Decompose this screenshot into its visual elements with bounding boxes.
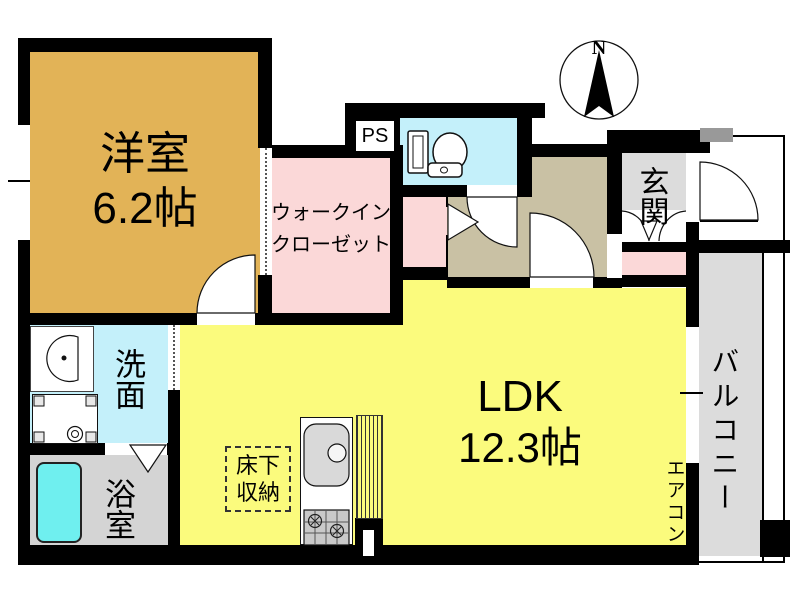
wall-balcony-top xyxy=(697,240,790,253)
pipe-space-box: PS xyxy=(356,121,394,151)
entrance-label: 玄関 xyxy=(634,156,668,236)
western-room-size: 6.2帖 xyxy=(55,184,235,234)
pipe-space-label: PS xyxy=(362,125,389,147)
shoe-cabinet xyxy=(622,252,686,275)
bottom-wall-notch xyxy=(363,530,374,556)
compass-needle-icon xyxy=(584,50,614,117)
washroom-label: 洗面 xyxy=(109,340,145,418)
ldk-floor-nook xyxy=(403,280,447,345)
wall-bottom xyxy=(18,545,699,565)
underfloor-storage-label-line1: 床下 xyxy=(236,452,280,480)
wall-balcony-corner xyxy=(760,520,790,557)
balcony-label: バルコニー xyxy=(707,326,739,538)
wall-entrance-top xyxy=(607,130,710,153)
front-door-gap xyxy=(686,153,699,222)
wall-closet-right-b xyxy=(446,235,448,280)
walk-in-closet-label-line1: ウォークイン xyxy=(262,200,400,226)
compass-north-label: N xyxy=(586,36,612,60)
balcony-rail-bottom-line xyxy=(697,561,785,563)
underfloor-storage-label-line2: 収納 xyxy=(236,479,280,507)
wall-top xyxy=(18,38,272,52)
ldk-balcony-window xyxy=(686,327,699,463)
ldk-window-tick xyxy=(680,392,703,394)
underfloor-storage-box: 床下 収納 xyxy=(225,446,291,512)
closet-floor xyxy=(403,197,447,267)
western-window-tick xyxy=(8,180,30,182)
western-room-label: 洋室 xyxy=(60,128,230,180)
ldk-size: 12.3帖 xyxy=(415,424,625,472)
ldk-floor-upper xyxy=(447,288,687,345)
refrigerator-space xyxy=(356,415,383,519)
wall-closet-right-a xyxy=(446,197,448,207)
wall-left xyxy=(18,38,30,565)
wall-toilet-bottom xyxy=(400,185,467,197)
balcony-rail-inner-line xyxy=(762,253,764,561)
washroom-door-dotted-line xyxy=(173,325,175,390)
western-room-window xyxy=(18,125,30,240)
entrance-hall-opening xyxy=(607,234,622,278)
bathtub xyxy=(36,462,82,543)
meter-box xyxy=(700,128,733,142)
kitchen-counter xyxy=(300,417,353,545)
hallway-floor-upper xyxy=(532,157,607,197)
washstand-counter xyxy=(30,326,94,392)
toilet-door-gap xyxy=(467,185,517,197)
wall-western-right-upper xyxy=(258,38,272,148)
bathroom-label: 浴室 xyxy=(99,470,135,548)
front-door-swing xyxy=(700,162,758,220)
washing-machine-pan xyxy=(32,394,98,444)
wall-western-right-lower xyxy=(258,275,272,315)
porch-top-line xyxy=(733,135,785,137)
ldk-door-gap xyxy=(530,277,593,288)
walk-in-closet-label-line2: クローゼット xyxy=(262,232,400,258)
wall-closet-bottom xyxy=(400,267,447,280)
bathroom-door-gap xyxy=(105,443,167,455)
ldk-label: LDK xyxy=(430,372,610,422)
wall-hall-bottom-left xyxy=(447,277,530,288)
floor-plan-canvas: PS xyxy=(0,0,800,600)
toilet-room-floor xyxy=(400,118,517,185)
wall-shoebox-top xyxy=(622,242,686,252)
western-room-door-gap xyxy=(197,313,255,325)
air-conditioner-label: エアコン xyxy=(662,452,684,552)
hallway-floor xyxy=(447,197,607,288)
front-door-leaf xyxy=(700,220,758,222)
balcony-rail-outer-line xyxy=(783,135,785,563)
